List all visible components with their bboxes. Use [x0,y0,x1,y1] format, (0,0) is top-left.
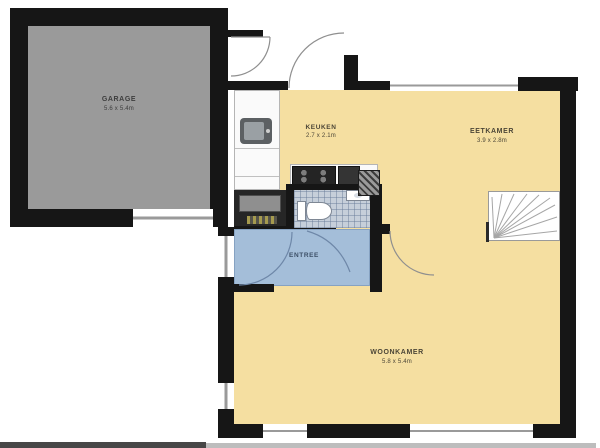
sink-basin [244,122,264,140]
closet-panel [239,195,281,212]
left-wall-bottom [218,409,234,438]
closet [234,190,286,228]
garage-floor [28,26,210,209]
bottom-wall-mid [307,424,410,438]
toilet [297,201,306,221]
living-dims: 5.8 x 5.4m [287,359,507,367]
vestibule-top-wall [225,30,263,37]
kitchen-name: KEUKEN [282,124,360,132]
top-window [390,80,518,91]
bottom-wall-right [533,424,576,438]
bottom-gray-band [206,443,596,448]
top-wall-mid [344,81,390,90]
counter-divider [235,176,279,177]
entree-name: ENTREE [244,252,364,260]
garage-name: GARAGE [28,96,210,105]
sink-faucet [266,129,270,133]
kitchen-sink [240,118,272,144]
stairs-newel [486,222,489,242]
bottom-window-left [263,424,307,438]
living-label: WOONKAMER 5.8 x 5.4m [287,349,507,366]
vestibule-floor [228,36,344,81]
duct-shaft [358,170,380,196]
floorplan-canvas: GARAGE 5.6 x 5.4m KEUKEN 2.7 x 2.1m EETK… [0,0,600,448]
living-door-stub-wall [382,224,390,234]
oven [338,166,360,186]
bottom-window-right [410,424,533,438]
living-name: WOONKAMER [287,349,507,358]
garage-label: GARAGE 5.6 x 5.4m [28,96,210,113]
entree-bottom-stub-wall [234,284,274,292]
bottom-dark-bar [0,442,206,448]
garage-door [133,209,213,227]
top-wall-left [228,81,288,90]
left-wall-mid [218,277,234,383]
dining-dims: 3.9 x 2.8m [432,138,552,146]
left-window-upper [218,236,234,277]
toilet-entree-right-wall [370,184,382,292]
winder-stairs [488,191,560,241]
stairs-treads [489,192,559,240]
dining-name: EETKAMER [432,128,552,137]
closet-shelf [247,216,277,224]
toilet-bowl [306,202,332,220]
counter-divider [235,148,279,149]
garage-dims: 5.6 x 5.4m [28,106,210,114]
left-wall-top [218,227,234,236]
right-wall [560,77,576,438]
kitchen-dims: 2.7 x 2.1m [282,133,360,141]
left-window-lower [218,383,234,409]
cooktop [292,166,336,186]
kitchen-label: KEUKEN 2.7 x 2.1m [282,124,360,141]
dining-label: EETKAMER 3.9 x 2.8m [432,128,552,145]
entree-label: ENTREE [244,252,364,260]
toilet-left-wall [286,184,294,232]
